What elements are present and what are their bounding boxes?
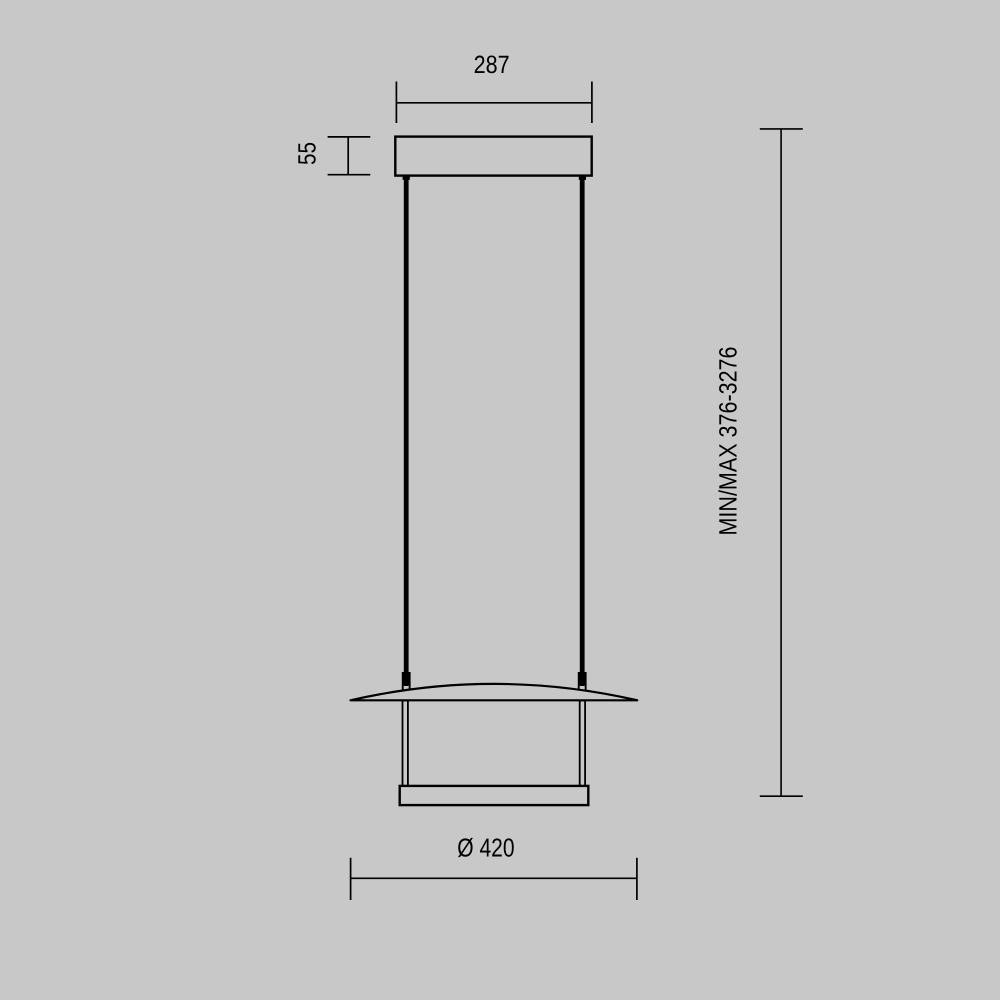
svg-text:MIN/MAX 376-3276: MIN/MAX 376-3276 [715, 347, 743, 536]
svg-text:287: 287 [474, 51, 510, 79]
svg-text:Ø 420: Ø 420 [457, 832, 514, 862]
svg-text:55: 55 [294, 142, 322, 165]
